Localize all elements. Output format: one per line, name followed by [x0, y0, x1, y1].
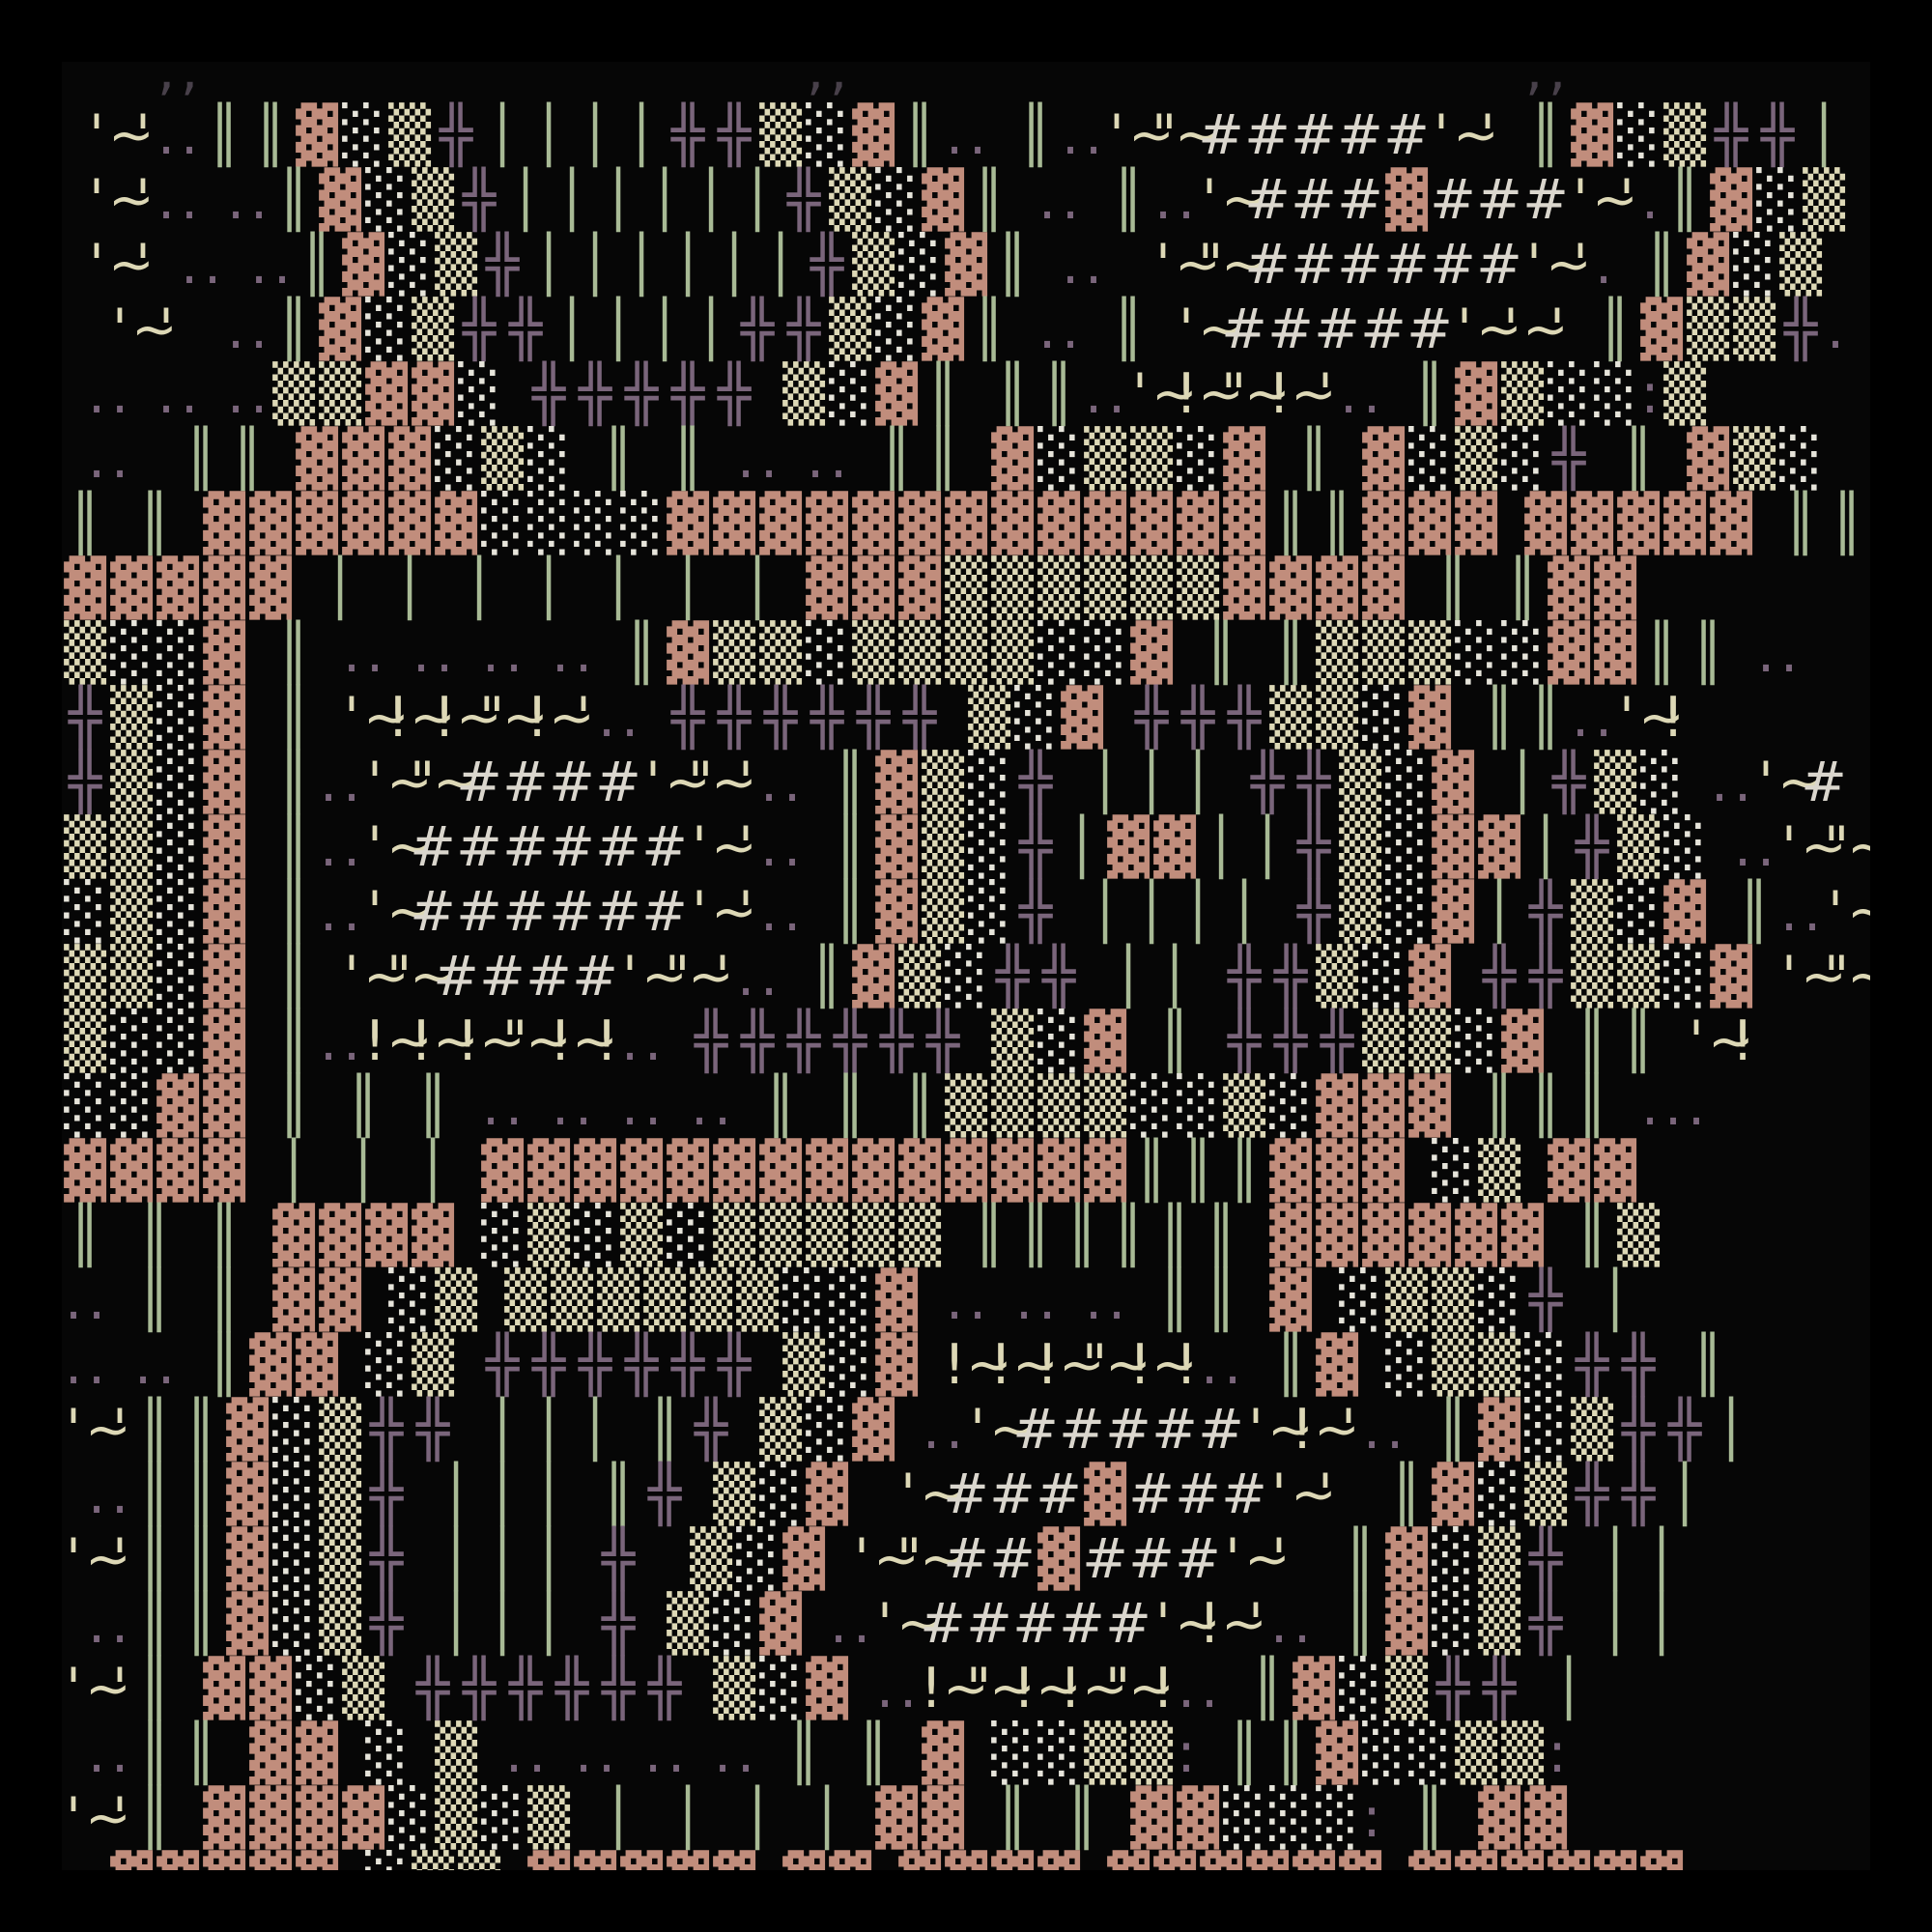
blank-cell: [1383, 1851, 1406, 1870]
blank-cell: [1499, 103, 1522, 168]
blank-cell: [1383, 362, 1406, 427]
artwork-stage: ,, ,, ,, '~'..║║▓░▒╬││││╬╬▒░▓║.. ║..'~"~…: [0, 0, 1932, 1932]
light-shade-block-glyph: ░: [155, 751, 201, 815]
tilde-ornament-glyph: ~: [1105, 1333, 1128, 1398]
light-shade-block-glyph: ░: [155, 686, 201, 751]
blank-cell: [641, 556, 665, 621]
hash-medallion-glyph-glyph: #: [989, 1527, 1036, 1592]
medium-shade-block-glyph: ▒: [433, 1786, 479, 1851]
blank-cell: [224, 62, 247, 103]
hash-medallion-glyph-glyph: #: [549, 815, 595, 880]
light-shade-block-glyph: ░: [827, 362, 873, 427]
dense-shade-block-glyph: ▓: [827, 1851, 873, 1870]
dense-shade-block-glyph: ▓: [1314, 1204, 1360, 1268]
dense-shade-block-glyph: ▓: [1291, 1657, 1337, 1721]
art-row-18: ║ ║ ║ ▓▓▓▓ ░▒░▒░▒▒▒▒▒ ║║║║║║ ▓▓▓▓▓▓ ║▒: [62, 1204, 1662, 1268]
double-vertical-bar-glyph: ║: [1731, 880, 1777, 945]
double-vertical-bar-glyph: ║: [827, 880, 873, 945]
blank-cell: [781, 945, 804, 1009]
single-vertical-bar-glyph: │: [1708, 1398, 1754, 1463]
tilde-ornament-glyph: ~: [711, 815, 734, 880]
dim-clipped-mark-glyph: ,: [827, 62, 850, 103]
hash-medallion-glyph-glyph: #: [1430, 168, 1476, 233]
medium-shade-block-glyph: ▒: [340, 1657, 386, 1721]
blank-cell: [943, 62, 966, 103]
light-shade-block-glyph: ░: [363, 298, 410, 362]
hash-medallion-glyph-glyph: #: [1476, 168, 1522, 233]
medium-shade-block-glyph: ▒: [108, 751, 155, 815]
blank-cell: [247, 621, 270, 686]
light-shade-block-glyph: ░: [1777, 427, 1824, 492]
tilde-ornament-glyph: ~: [1151, 1333, 1175, 1398]
light-shade-block-glyph: ░: [1360, 686, 1406, 751]
hash-medallion-glyph-glyph: #: [595, 751, 641, 815]
dot-ornament-glyph: .: [340, 621, 363, 686]
blank-cell: [1476, 556, 1499, 621]
light-shade-block-glyph: ░: [363, 1851, 410, 1870]
blank-cell: [433, 556, 456, 621]
tilde-ornament-glyph: ~: [363, 686, 386, 751]
medium-shade-block-glyph: ▒: [665, 1592, 711, 1657]
dense-shade-block-glyph: ▓: [850, 1398, 896, 1463]
hash-medallion-glyph-glyph: #: [1105, 1592, 1151, 1657]
dense-shade-block-glyph: ▓: [1221, 492, 1267, 556]
blank-cell: [873, 62, 896, 103]
dense-shade-block-glyph: ▓: [294, 427, 340, 492]
light-shade-block-glyph: ░: [1476, 1268, 1522, 1333]
exclamation-ornament-glyph: !: [1198, 1592, 1221, 1657]
single-vertical-bar-glyph: │: [1638, 1592, 1685, 1657]
blank-cell: [1105, 686, 1128, 751]
dense-shade-block-glyph: ▓: [1291, 1851, 1337, 1870]
double-vertical-bar-glyph: ║: [131, 1592, 178, 1657]
light-shade-block-glyph: ░: [363, 168, 410, 233]
double-cross-glyph: ╬: [1522, 945, 1569, 1009]
double-vertical-bar-glyph: ║: [1824, 492, 1870, 556]
dot-ornament-glyph: .: [1708, 751, 1731, 815]
single-vertical-bar-glyph: │: [572, 103, 618, 168]
dot-ornament-glyph: .: [1198, 1333, 1221, 1398]
tilde-ornament-glyph: ~: [85, 1527, 108, 1592]
dense-shade-block-glyph: ▓: [479, 1139, 526, 1204]
medium-shade-block-glyph: ▒: [618, 1204, 665, 1268]
light-shade-block-glyph: ░: [1036, 427, 1082, 492]
light-shade-block-glyph: ░: [433, 427, 479, 492]
dot-ornament-glyph: .: [340, 815, 363, 880]
single-vertical-bar-glyph: │: [433, 1463, 479, 1527]
blank-cell: [757, 362, 781, 427]
blank-cell: [572, 556, 595, 621]
light-shade-block-glyph: ░: [108, 621, 155, 686]
dense-shade-block-glyph: ▓: [1685, 233, 1731, 298]
apostrophe-ornament-glyph: ': [850, 1527, 873, 1592]
blank-cell: [1662, 1333, 1685, 1398]
dense-shade-block-glyph: ▓: [1662, 880, 1708, 945]
medium-shade-block-glyph: ▒: [943, 1074, 989, 1139]
blank-cell: [1267, 427, 1291, 492]
tilde-ornament-glyph: ~: [1453, 103, 1476, 168]
double-vertical-bar-glyph: ║: [1105, 1204, 1151, 1268]
double-cross-glyph: ╬: [595, 1592, 641, 1657]
double-cross-glyph: ╬: [734, 298, 781, 362]
double-cross-glyph: ╬: [1569, 1463, 1615, 1527]
double-vertical-bar-glyph: ║: [1592, 298, 1638, 362]
blank-cell: [386, 1139, 410, 1204]
double-vertical-bar-glyph: ║: [178, 1398, 224, 1463]
apostrophe-ornament-glyph: ': [688, 815, 711, 880]
exclamation-ornament-glyph: !: [1059, 1657, 1082, 1721]
double-cross-glyph: ╬: [665, 1333, 711, 1398]
double-vertical-bar-glyph: ║: [1244, 1657, 1291, 1721]
blank-cell: [850, 427, 873, 492]
blank-cell: [850, 62, 873, 103]
double-cross-glyph: ╬: [1267, 945, 1314, 1009]
double-vertical-bar-glyph: ║: [1012, 1204, 1059, 1268]
blank-cell: [1244, 1268, 1267, 1333]
medium-shade-block-glyph: ▒: [433, 1721, 479, 1786]
tilde-ornament-glyph: ~: [502, 686, 526, 751]
blank-cell: [502, 362, 526, 427]
double-vertical-bar-glyph: ║: [340, 1074, 386, 1139]
dot-ornament-glyph: .: [1777, 621, 1801, 686]
medium-shade-block-glyph: ▒: [1082, 1074, 1128, 1139]
art-row-4: '~' ..║▓░▒╬╬││││╬╬▒░▓║ .. ║ '~#####'~'~'…: [62, 298, 1847, 362]
dense-shade-block-glyph: ▓: [1546, 556, 1592, 621]
light-shade-block-glyph: ░: [1499, 427, 1546, 492]
tilde-ornament-glyph: ~: [920, 1463, 943, 1527]
double-vertical-bar-glyph: ║: [804, 945, 850, 1009]
medium-shade-block-glyph: ▒: [1036, 556, 1082, 621]
apostrophe-ornament-glyph: ': [1777, 945, 1801, 1009]
dense-shade-block-glyph: ▓: [62, 556, 108, 621]
blank-cell: [943, 686, 966, 751]
tilde-ornament-glyph: ~: [85, 1398, 108, 1463]
exclamation-ornament-glyph: !: [386, 686, 410, 751]
blank-cell: [1337, 62, 1360, 103]
dense-shade-block-glyph: ▓: [363, 1204, 410, 1268]
dot-ornament-glyph: .: [1036, 1268, 1059, 1333]
double-vertical-bar-glyph: ║: [131, 1657, 178, 1721]
double-cross-glyph: ╬: [479, 233, 526, 298]
blank-cell: [572, 1592, 595, 1657]
dot-ornament-glyph: .: [827, 427, 850, 492]
double-vertical-bar-glyph: ║: [178, 1721, 224, 1786]
apostrophe-ornament-glyph: ': [363, 751, 386, 815]
dot-ornament-glyph: .: [247, 168, 270, 233]
art-row-25: '~'║ ▓▓░▒ ╬╬╬╬╬╬ ▒░▓ ..!~"~!~!~"~!.. ║▓░…: [62, 1657, 1592, 1721]
dense-shade-block-glyph: ▓: [108, 1139, 155, 1204]
blank-cell: [1314, 1592, 1337, 1657]
blank-cell: [1406, 556, 1430, 621]
dot-ornament-glyph: .: [62, 1333, 85, 1398]
light-shade-block-glyph: ░: [827, 1268, 873, 1333]
blank-cell: [178, 298, 201, 362]
blank-cell: [410, 1527, 433, 1592]
hash-medallion-glyph-glyph: #: [1291, 103, 1337, 168]
dense-shade-block-glyph: ▓: [1592, 1139, 1638, 1204]
art-row-27: '~'║ ▓▓▓▓░▒░▒ │ │ │ │ ▓▓ ║ ║ ▓▓░░░: ║ ▓▓: [62, 1786, 1569, 1851]
single-vertical-bar-glyph: │: [526, 103, 572, 168]
ascii-art-canvas: ,, ,, ,, '~'..║║▓░▒╬││││╬╬▒░▓║.. ║..'~"~…: [62, 62, 1870, 1870]
double-cross-glyph: ╬: [711, 686, 757, 751]
dense-shade-block-glyph: ▓: [1499, 1204, 1546, 1268]
art-row-9: ▒░░▓ ║ .. .. .. .. ║▓▒▒░▒▒▒▒░░▓ ║ ║▒▒▒░░…: [62, 621, 1801, 686]
dense-shade-block-glyph: ▓: [340, 233, 386, 298]
double-vertical-bar-glyph: ║: [270, 945, 317, 1009]
hash-medallion-glyph-glyph: #: [1175, 1527, 1221, 1592]
apostrophe-ornament-glyph: ': [108, 1398, 131, 1463]
double-cross-glyph: ╬: [1291, 815, 1337, 880]
dense-shade-block-glyph: ▓: [1383, 1527, 1430, 1592]
dense-shade-block-glyph: ▓: [294, 1851, 340, 1870]
tilde-ornament-glyph: ~: [688, 945, 711, 1009]
blank-cell: [1522, 1139, 1546, 1204]
light-shade-block-glyph: ░: [1430, 1527, 1476, 1592]
single-vertical-bar-glyph: │: [1128, 751, 1175, 815]
dense-shade-block-glyph: ▓: [224, 1592, 270, 1657]
dense-shade-block-glyph: ▓: [920, 168, 966, 233]
double-cross-glyph: ╬: [456, 168, 502, 233]
double-cross-glyph: ╬: [989, 945, 1036, 1009]
medium-shade-block-glyph: ▒: [757, 1398, 804, 1463]
blank-cell: [131, 362, 155, 427]
dense-shade-block-glyph: ▓: [1546, 621, 1592, 686]
apostrophe-ornament-glyph: ': [1267, 1527, 1291, 1592]
dense-shade-block-glyph: ▓: [711, 1851, 757, 1870]
single-vertical-bar-glyph: │: [1175, 880, 1221, 945]
double-vertical-bar-glyph: ║: [201, 1268, 247, 1333]
hash-medallion-glyph-glyph: #: [641, 880, 688, 945]
dense-shade-block-glyph: ▓: [386, 492, 433, 556]
tilde-ornament-glyph: ~: [386, 880, 410, 945]
double-vertical-bar-glyph: ║: [270, 298, 317, 362]
single-vertical-bar-glyph: │: [1221, 880, 1267, 945]
medium-shade-block-glyph: ▒: [850, 1204, 896, 1268]
blank-cell: [1244, 62, 1267, 103]
apostrophe-ornament-glyph: ': [1198, 168, 1221, 233]
apostrophe-ornament-glyph: ': [1615, 686, 1638, 751]
blank-cell: [62, 62, 85, 103]
double-vertical-bar-glyph: ║: [1059, 1204, 1105, 1268]
dot-ornament-glyph: .: [943, 103, 966, 168]
single-vertical-bar-glyph: │: [479, 1592, 526, 1657]
blank-cell: [1754, 945, 1777, 1009]
dense-shade-block-glyph: ▓: [247, 1786, 294, 1851]
hash-medallion-glyph-glyph: #: [1012, 1398, 1059, 1463]
blank-cell: [247, 880, 270, 945]
blank-cell: [479, 1721, 502, 1786]
dense-shade-block-glyph: ▓: [1105, 1851, 1151, 1870]
medium-shade-block-glyph: ▒: [410, 168, 456, 233]
apostrophe-ornament-glyph: ': [62, 1786, 85, 1851]
light-shade-block-glyph: ░: [479, 492, 526, 556]
apostrophe-ornament-glyph: ': [62, 1527, 85, 1592]
blank-cell: [1360, 1333, 1383, 1398]
apostrophe-ornament-glyph: ': [363, 815, 386, 880]
light-shade-block-glyph: ░: [1615, 103, 1662, 168]
tilde-ornament-glyph: ~: [1546, 233, 1569, 298]
blank-cell: [247, 686, 270, 751]
dense-shade-block-glyph: ▓: [781, 1851, 827, 1870]
medium-shade-block-glyph: ▒: [526, 1204, 572, 1268]
apostrophe-ornament-glyph: ': [1546, 298, 1569, 362]
blank-cell: [966, 362, 989, 427]
hash-medallion-glyph-glyph: #: [1406, 298, 1453, 362]
dot-ornament-glyph: .: [1012, 1268, 1036, 1333]
hash-medallion-glyph-glyph: #: [943, 1527, 989, 1592]
blank-cell: [1476, 62, 1499, 103]
single-vertical-bar-glyph: │: [1105, 945, 1151, 1009]
dense-shade-block-glyph: ▓: [1128, 621, 1175, 686]
dense-shade-block-glyph: ▓: [1708, 168, 1754, 233]
tilde-ornament-glyph: ~: [1476, 298, 1499, 362]
blank-cell: [1105, 233, 1128, 298]
dot-ornament-glyph: .: [966, 1268, 989, 1333]
double-cross-glyph: ╬: [363, 1463, 410, 1527]
dense-shade-block-glyph: ▓: [1314, 1139, 1360, 1204]
single-vertical-bar-glyph: │: [433, 1527, 479, 1592]
dot-ornament-glyph: .: [595, 686, 618, 751]
dense-shade-block-glyph: ▓: [410, 1204, 456, 1268]
hash-medallion-glyph-glyph: #: [1128, 1527, 1175, 1592]
blank-cell: [1314, 1527, 1337, 1592]
dot-ornament-glyph: .: [1059, 298, 1082, 362]
apostrophe-ornament-glyph: ': [1499, 298, 1522, 362]
blank-cell: [1291, 1527, 1314, 1592]
dense-shade-block-glyph: ▓: [1476, 1398, 1522, 1463]
dot-ornament-glyph: .: [1291, 1592, 1314, 1657]
blank-cell: [340, 1721, 363, 1786]
blank-cell: [1128, 233, 1151, 298]
double-vertical-bar-glyph: ║: [131, 1786, 178, 1851]
dense-shade-block-glyph: ▓: [363, 362, 410, 427]
dense-shade-block-glyph: ▓: [1128, 492, 1175, 556]
blank-cell: [1569, 1592, 1592, 1657]
dense-shade-block-glyph: ▓: [1267, 1139, 1314, 1204]
dot-ornament-glyph: .: [1824, 298, 1847, 362]
blank-cell: [781, 1786, 804, 1851]
blank-cell: [317, 686, 340, 751]
blank-cell: [456, 62, 479, 103]
double-cross-glyph: ╬: [1546, 751, 1592, 815]
single-vertical-bar-glyph: │: [526, 1592, 572, 1657]
dense-shade-block-glyph: ▓: [108, 556, 155, 621]
double-vertical-bar-glyph: ║: [641, 1398, 688, 1463]
blank-cell: [989, 103, 1012, 168]
double-cross-glyph: ╬: [595, 1657, 641, 1721]
dot-ornament-glyph: .: [711, 1074, 734, 1139]
dense-shade-block-glyph: ▓: [850, 556, 896, 621]
tilde-ornament-glyph: ~: [1244, 1527, 1267, 1592]
blank-cell: [804, 1592, 827, 1657]
apostrophe-ornament-glyph: ': [62, 1398, 85, 1463]
blank-cell: [201, 62, 224, 103]
medium-shade-block-glyph: ▒: [896, 621, 943, 686]
double-vertical-bar-glyph: ║: [1105, 168, 1151, 233]
double-cross-glyph: ╬: [502, 298, 549, 362]
medium-shade-block-glyph: ▒: [410, 298, 456, 362]
dense-shade-block-glyph: ▓: [804, 1139, 850, 1204]
blank-cell: [595, 1074, 618, 1139]
blank-cell: [665, 1074, 688, 1139]
dense-shade-block-glyph: ▓: [1453, 492, 1499, 556]
medium-shade-block-glyph: ▒: [1569, 1398, 1615, 1463]
apostrophe-ornament-glyph: ': [340, 945, 363, 1009]
double-vertical-bar-glyph: ║: [595, 1463, 641, 1527]
tilde-ornament-glyph: ~: [1151, 362, 1175, 427]
blank-cell: [270, 427, 294, 492]
dim-clipped-mark-glyph: ,: [1546, 62, 1569, 103]
dense-shade-block-glyph: ▓: [247, 1333, 294, 1398]
double-vertical-bar-glyph: ║: [595, 427, 641, 492]
dense-shade-block-glyph: ▓: [943, 492, 989, 556]
double-cross-glyph: ╬: [688, 1009, 734, 1074]
dense-shade-block-glyph: ▓: [247, 1851, 294, 1870]
double-cross-glyph: ╬: [827, 1009, 873, 1074]
dot-ornament-glyph: .: [618, 686, 641, 751]
dense-shade-block-glyph: ▓: [1314, 1721, 1360, 1786]
single-vertical-bar-glyph: │: [804, 1786, 850, 1851]
dense-shade-block-glyph: ▓: [108, 1851, 155, 1870]
single-vertical-bar-glyph: │: [526, 1463, 572, 1527]
colon-ornament-glyph: :: [1638, 362, 1662, 427]
blank-cell: [1546, 1009, 1569, 1074]
blank-cell: [1059, 62, 1082, 103]
blank-cell: [62, 168, 85, 233]
hash-medallion-glyph-glyph: #: [1291, 233, 1337, 298]
tilde-ornament-glyph: ~: [966, 1333, 989, 1398]
medium-shade-block-glyph: ▒: [502, 1268, 549, 1333]
dot-ornament-glyph: .: [757, 815, 781, 880]
dense-shade-block-glyph: ▓: [1360, 556, 1406, 621]
medium-shade-block-glyph: ▒: [456, 1851, 502, 1870]
blank-cell: [317, 1139, 340, 1204]
single-vertical-bar-glyph: │: [526, 556, 572, 621]
medium-shade-block-glyph: ▒: [641, 1268, 688, 1333]
single-vertical-bar-glyph: │: [1082, 880, 1128, 945]
apostrophe-ornament-glyph: ': [1430, 103, 1453, 168]
art-row-0: ,, ,, ,,: [62, 62, 1569, 103]
dense-shade-block-glyph: ▓: [665, 492, 711, 556]
double-vertical-bar-glyph: ║: [1128, 1139, 1175, 1204]
dense-shade-block-glyph: ▓: [850, 492, 896, 556]
dot-ornament-glyph: .: [502, 621, 526, 686]
dot-ornament-glyph: .: [1175, 1657, 1198, 1721]
tilde-ornament-glyph: ~: [1175, 1592, 1198, 1657]
blank-cell: [456, 1204, 479, 1268]
dot-ornament-glyph: .: [62, 1268, 85, 1333]
single-vertical-bar-glyph: │: [1662, 1463, 1708, 1527]
double-vertical-bar-glyph: ║: [618, 621, 665, 686]
apostrophe-ornament-glyph: ': [896, 1463, 920, 1527]
blank-cell: [1244, 1333, 1267, 1398]
medium-shade-block-glyph: ▒: [1731, 298, 1777, 362]
blank-cell: [1267, 880, 1291, 945]
light-shade-block-glyph: ░: [734, 1527, 781, 1592]
blank-cell: [920, 62, 943, 103]
double-cross-glyph: ╬: [781, 1009, 827, 1074]
blank-cell: [757, 62, 781, 103]
medium-shade-block-glyph: ▒: [1662, 103, 1708, 168]
blank-cell: [572, 62, 595, 103]
light-shade-block-glyph: ░: [827, 1333, 873, 1398]
exclamation-ornament-glyph: !: [1267, 362, 1291, 427]
dense-shade-block-glyph: ▓: [224, 1527, 270, 1592]
light-shade-block-glyph: ░: [270, 1592, 317, 1657]
light-shade-block-glyph: ░: [665, 1204, 711, 1268]
dot-ornament-glyph: .: [781, 880, 804, 945]
double-vertical-bar-glyph: ║: [224, 427, 270, 492]
